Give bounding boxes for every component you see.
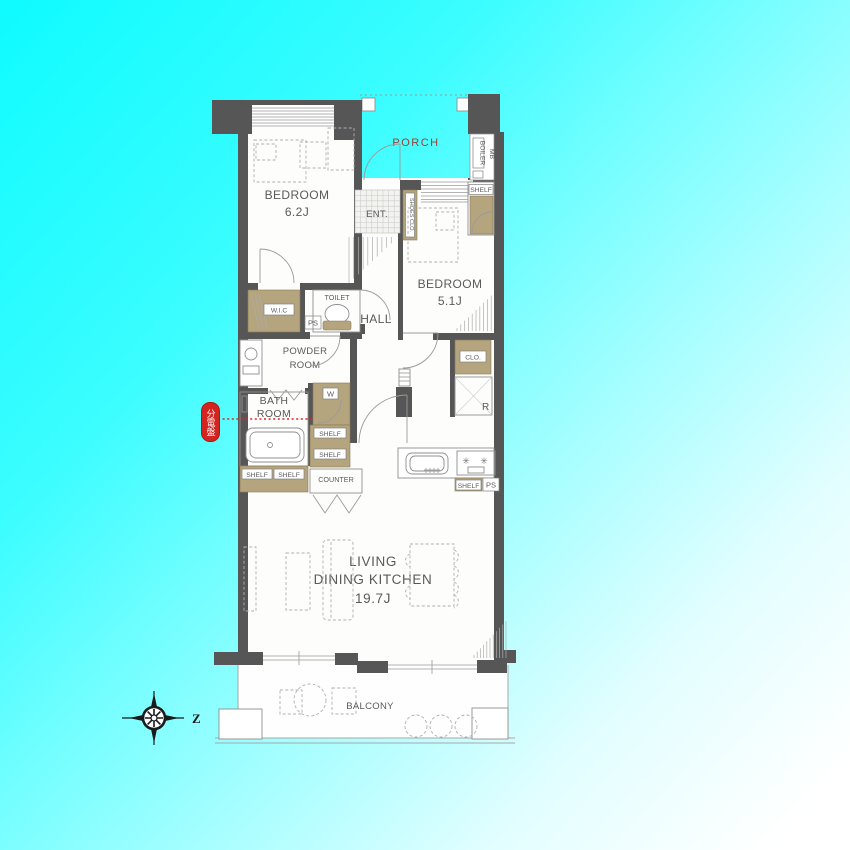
- bath-room-label: BATH: [260, 395, 289, 407]
- shelf-label: SHELF: [319, 431, 341, 438]
- entrance-label: ENT.: [366, 209, 388, 220]
- bedroom2-size: 5.1J: [438, 294, 462, 308]
- burner-icon: ✳: [462, 456, 470, 466]
- boiler-label: BOILER: [479, 141, 486, 166]
- kitchen-ps-label: PS: [486, 481, 496, 490]
- meter-box: [473, 171, 483, 178]
- floor-plan: PORCH: [210, 92, 520, 752]
- closet-label: CLO.: [465, 355, 481, 362]
- shelf-label: SHELF: [246, 472, 268, 479]
- porch-boundary: [360, 95, 472, 111]
- hall-label: HALL: [360, 312, 392, 326]
- balcony-label: BALCONY: [346, 701, 394, 712]
- wic-label: W.I.C: [271, 308, 288, 315]
- shelf-niche-top: SHELF: [468, 182, 494, 235]
- ldk-label2: DINING KITCHEN: [314, 572, 433, 587]
- balcony-slab: [219, 709, 262, 739]
- shelf-label: SHELF: [470, 187, 492, 194]
- bath-shelves: SHELF SHELF: [240, 466, 308, 492]
- bedroom1-label: BEDROOM: [265, 188, 330, 202]
- shelf-label: SHELF: [458, 483, 480, 490]
- boiler-niche: BOILER MB: [470, 134, 495, 180]
- ldk-label1: LIVING: [349, 554, 397, 569]
- closet: CLO.: [455, 340, 491, 374]
- shelf-label: SHELF: [319, 452, 341, 459]
- porch-label: PORCH: [392, 137, 439, 149]
- porch-post: [362, 98, 375, 111]
- entrance: ENT.: [355, 190, 400, 233]
- bedroom2-window: [421, 180, 473, 202]
- washer-label: W: [327, 390, 335, 399]
- shoes-closet-label: SHOES CLO.: [408, 198, 414, 233]
- powder-room-label: POWDER: [283, 346, 328, 357]
- bedroom1-size: 6.2J: [285, 205, 309, 219]
- distribution-panel-badge: 分電盤: [201, 402, 220, 442]
- balcony-slab: [472, 708, 508, 739]
- ldk-size: 19.7J: [355, 591, 391, 606]
- fridge-label: R: [482, 402, 489, 413]
- toilet-label: TOILET: [324, 293, 350, 302]
- counter-label: COUNTER: [318, 475, 354, 484]
- shoes-closet: SHOES CLO.: [403, 190, 417, 240]
- floorplan-page: PORCH: [0, 0, 850, 850]
- burner-icon: ✳: [480, 456, 488, 466]
- entry-door: [364, 144, 400, 180]
- mb-label: MB: [488, 149, 495, 160]
- compass-icon: Z: [120, 690, 210, 748]
- bedroom1-window: [252, 105, 334, 126]
- compass-north-letter: Z: [192, 711, 201, 726]
- shelf-label: SHELF: [278, 472, 300, 479]
- bedroom2-label: BEDROOM: [418, 277, 483, 291]
- washer-shelf-column: W SHELF SHELF: [310, 383, 350, 467]
